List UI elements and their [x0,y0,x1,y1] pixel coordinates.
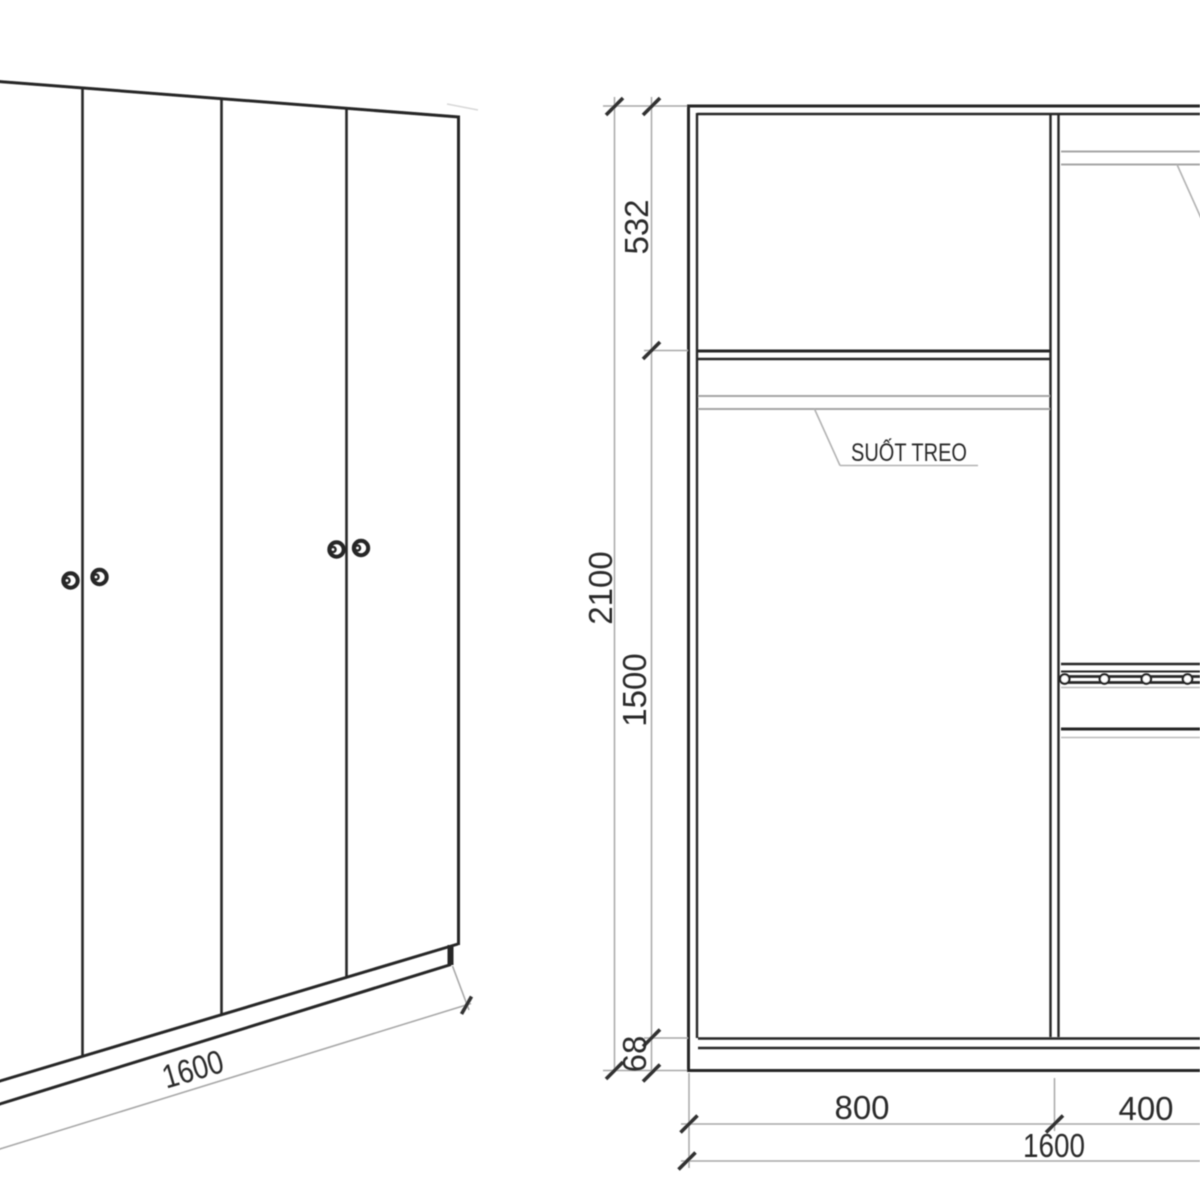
svg-text:400: 400 [1118,1090,1173,1127]
svg-text:1500: 1500 [616,653,653,726]
svg-text:2100: 2100 [582,551,619,624]
svg-text:800: 800 [834,1089,889,1126]
svg-text:1600: 1600 [1023,1127,1085,1164]
svg-text:68: 68 [616,1036,653,1073]
svg-text:SUỐT TREO: SUỐT TREO [851,437,967,467]
svg-text:532: 532 [618,199,655,254]
